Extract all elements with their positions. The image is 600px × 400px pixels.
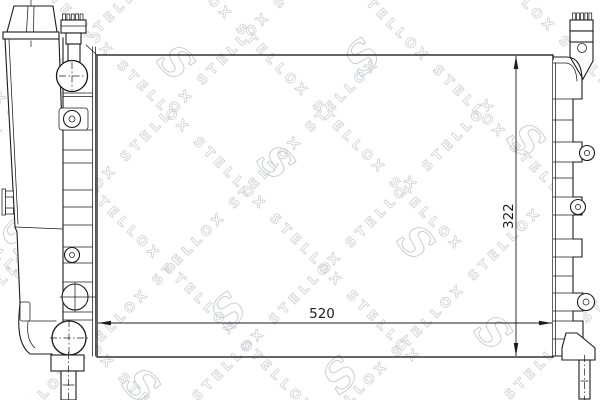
watermark-s-logo: S [465,304,521,360]
tank-side-bracket [2,189,14,215]
height-dimension-label: 322 [501,203,517,229]
right-fitting-top [580,146,595,161]
middle-fitting [65,248,80,263]
bleed-fitting [59,108,88,130]
watermark-s-logo: S [200,283,256,339]
right-fitting-middle [571,200,586,215]
left-expansion-tank [2,0,63,354]
bracket-hole [578,44,587,53]
width-dimension-label: 520 [309,306,335,322]
right-mount-leg [562,333,595,400]
cap-flange [3,32,59,39]
tank-corner-tab [20,302,30,321]
right-fitting-bottom [578,294,595,311]
arrow-down [514,343,519,356]
top-hose-port [57,61,88,92]
filler-cap [7,6,57,32]
arrow-up [514,56,519,69]
arrow-right [539,321,552,326]
radiator-technical-drawing: STELLOX STELLOX STELLOX STELLOX STELLOX … [0,0,600,400]
watermark-s-logo: S [498,112,554,168]
watermark-s-logo: S [334,29,390,85]
radiator-drawing-canvas: STELLOX STELLOX STELLOX STELLOX STELLOX … [0,0,600,400]
